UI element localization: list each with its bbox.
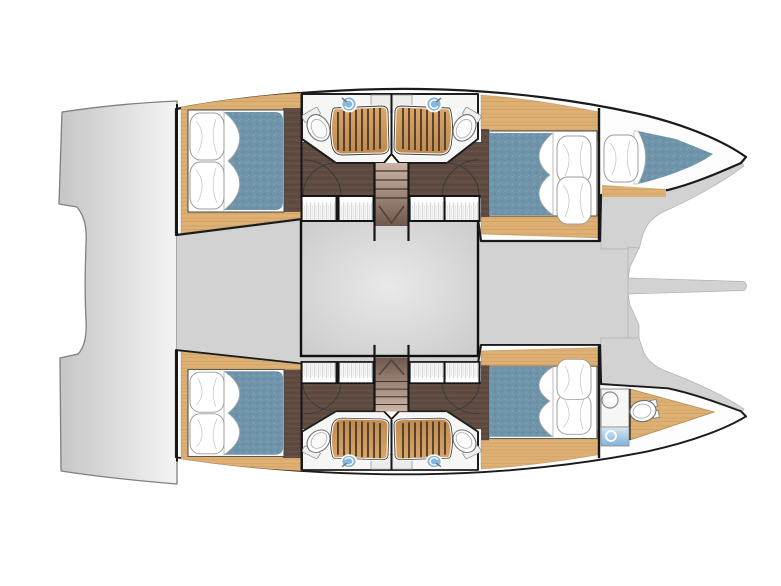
catamaran-deck-plan — [0, 0, 781, 586]
bowsprit — [628, 247, 747, 338]
head-sink-round — [602, 392, 618, 408]
transom-platform — [59, 101, 177, 484]
salon-void — [301, 218, 478, 356]
foredeck — [600, 161, 747, 413]
floor-plan-canvas — [0, 0, 781, 586]
